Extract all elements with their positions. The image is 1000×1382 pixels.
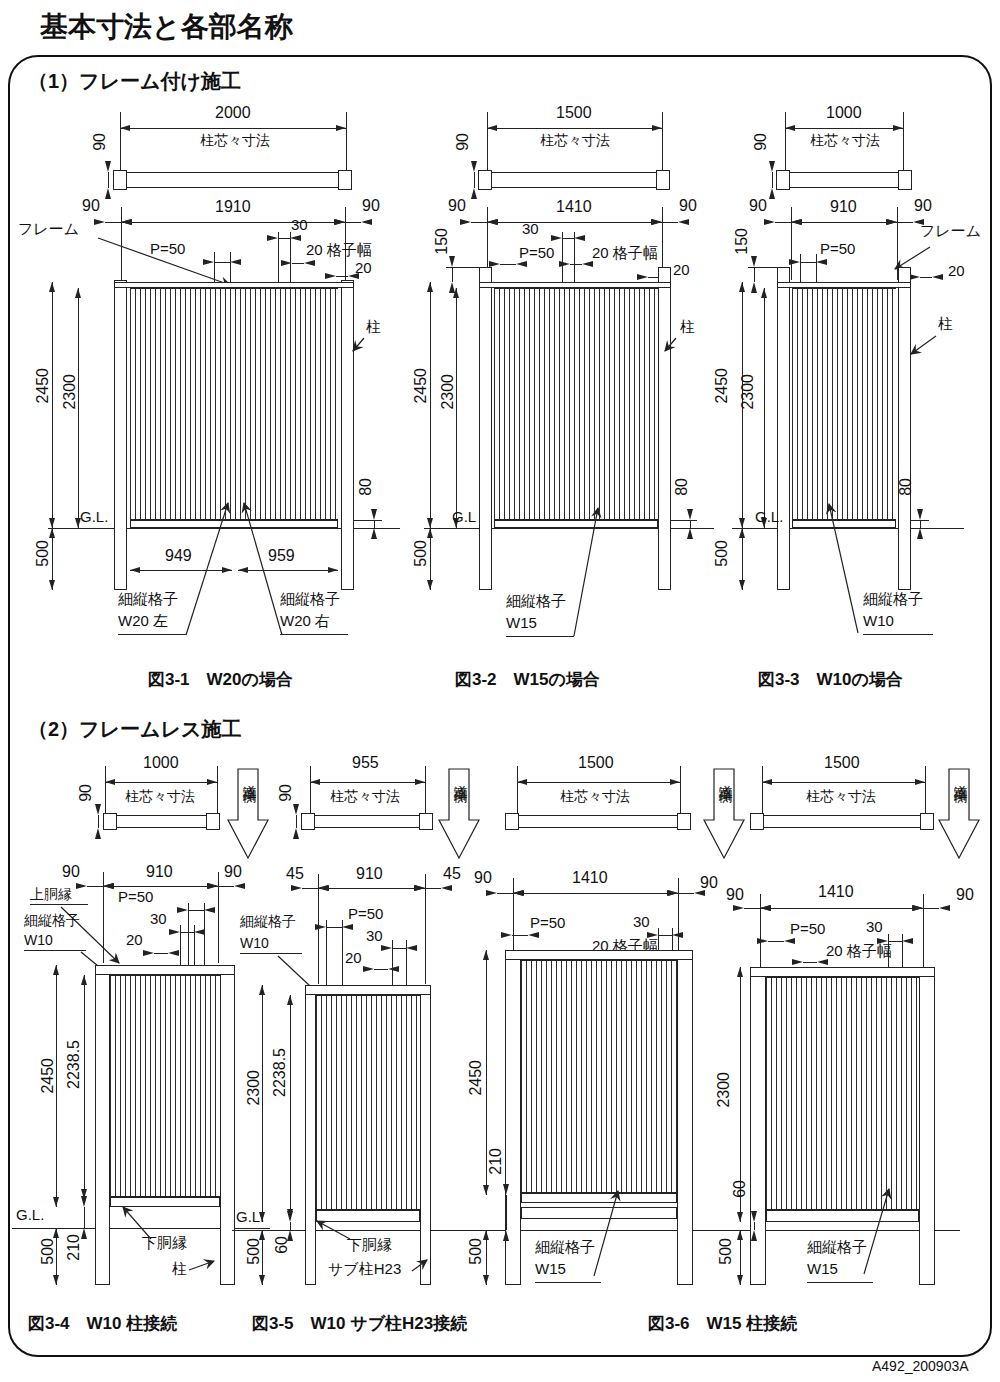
- dim-line: [923, 908, 939, 909]
- leader-line: [238, 497, 288, 643]
- label-post-center: 柱芯々寸法: [330, 788, 400, 805]
- plan-rail: [752, 815, 933, 828]
- dim-span: 2000: [215, 103, 251, 122]
- ext-line: [214, 252, 215, 284]
- label-lattice: 細縦格子: [24, 912, 80, 929]
- dim-p50: P=50: [790, 920, 825, 938]
- label-post-center: 柱芯々寸法: [540, 132, 610, 149]
- label-lattice: 細縦格子: [280, 590, 340, 608]
- ext-line: [446, 267, 480, 268]
- plan-post: [113, 170, 127, 190]
- dim-line: [562, 238, 574, 239]
- leader-line: [408, 1254, 434, 1276]
- dim-20: 20: [673, 261, 690, 279]
- dim-clear: 910: [356, 864, 383, 883]
- lattice-panel: [110, 975, 220, 1197]
- ext-line: [923, 894, 924, 967]
- dim-30: 30: [633, 913, 650, 931]
- label-gl: G.L.: [755, 508, 783, 526]
- dim-line: [278, 238, 290, 239]
- dim-line: [188, 910, 204, 911]
- dim-500: 500: [466, 1238, 485, 1265]
- caption-fig3-3: 図3-3 W10の場合: [758, 668, 903, 691]
- dim-line: [105, 222, 121, 223]
- leader-line: [662, 336, 682, 356]
- dim-line: [296, 815, 297, 828]
- dim-line: [374, 520, 375, 528]
- upper-rail: [750, 967, 935, 977]
- post-right: [898, 267, 911, 590]
- dim-500: 500: [38, 1238, 57, 1265]
- dim-line: [84, 975, 85, 1199]
- dim-span: 1000: [826, 103, 862, 122]
- dim-line: [920, 520, 921, 528]
- dim-line: [517, 782, 680, 783]
- drawing-page: 基本寸法と各部名称 （1）フレーム付け施工 （2）フレームレス施工 A492_2…: [0, 0, 1000, 1382]
- post-right: [919, 967, 935, 1285]
- plan-rail: [507, 815, 690, 828]
- dim-line: [690, 520, 691, 528]
- dim-clear: 1410: [572, 868, 608, 887]
- dim-p50: P=50: [118, 888, 153, 906]
- dim-line: [768, 941, 784, 942]
- dim-line: [290, 995, 291, 1219]
- label-post-center: 柱芯々寸法: [806, 788, 876, 805]
- road-side-arrow: [938, 768, 980, 860]
- plan-post: [920, 813, 934, 830]
- dim-2450: 2450: [411, 368, 430, 404]
- label-lattice-type: W20 左: [118, 612, 168, 630]
- dim-p50: P=50: [150, 240, 185, 258]
- label-lattice-type: W10: [240, 935, 269, 952]
- ext-line: [902, 934, 903, 967]
- label-upper-rail: 上胴縁: [30, 886, 72, 903]
- road-side-arrow: [438, 768, 480, 860]
- dim-20: 20: [126, 931, 143, 949]
- ext-line: [180, 925, 181, 965]
- leader-line: [586, 1184, 628, 1280]
- plan-post: [419, 813, 433, 830]
- dim-line: [662, 222, 678, 223]
- road-side-arrow: [227, 768, 269, 860]
- label-lattice: 細縦格子: [118, 590, 178, 608]
- plan-rail: [480, 172, 668, 188]
- post-left: [114, 280, 127, 590]
- dim-210: 210: [486, 1148, 505, 1175]
- dim-line: [87, 886, 103, 887]
- post-right: [220, 965, 235, 1285]
- dim-line: [84, 1207, 85, 1228]
- dim-line: [121, 222, 345, 223]
- dim-line: [803, 962, 817, 963]
- dim-150: 150: [432, 228, 451, 255]
- dim-line: [800, 262, 816, 263]
- dim-90: 90: [474, 868, 492, 887]
- dim-line: [105, 782, 217, 783]
- post-right: [658, 267, 671, 590]
- plan-post: [898, 170, 912, 190]
- dim-2300: 2300: [60, 374, 79, 410]
- dim-line: [318, 888, 425, 889]
- ext-line: [748, 267, 778, 268]
- dim-2450: 2450: [466, 1060, 485, 1096]
- plan-post: [478, 170, 492, 190]
- dim-clear: 910: [830, 197, 857, 216]
- ext-line: [671, 520, 697, 521]
- ext-line: [425, 874, 426, 984]
- dim-2450: 2450: [38, 1058, 57, 1094]
- dim-45: 45: [443, 864, 461, 883]
- dim-line: [500, 264, 516, 265]
- caption-fig3-5: 図3-5 W10 サブ柱H23接続: [252, 1312, 467, 1335]
- dim-line: [775, 222, 791, 223]
- label-lattice-type: W15: [506, 614, 537, 632]
- upper-rail: [505, 950, 693, 960]
- plan-post: [301, 813, 315, 830]
- leader-line: [906, 333, 942, 359]
- dim-line: [762, 782, 925, 783]
- plan-post: [103, 813, 117, 830]
- dim-line: [506, 1195, 507, 1230]
- dim-line: [108, 172, 109, 188]
- dim-line: [785, 128, 903, 129]
- leader-line: [350, 336, 370, 356]
- dim-clear: 1910: [215, 197, 251, 216]
- upper-rail: [95, 965, 235, 975]
- ext-line: [903, 112, 904, 170]
- dim-line: [180, 932, 194, 933]
- road-side-arrow: [703, 768, 745, 860]
- ext-line: [574, 232, 575, 284]
- dim-line: [791, 222, 897, 223]
- dim-60: 60: [272, 1236, 291, 1254]
- leader-line: [170, 495, 240, 645]
- dim-45: 45: [286, 864, 304, 883]
- ext-line: [678, 878, 679, 950]
- dim-line: [487, 222, 662, 223]
- dim-line: [497, 893, 513, 894]
- label-post: 柱: [680, 318, 695, 336]
- ext-line: [925, 766, 926, 814]
- label-road-side: 道路側: [717, 774, 735, 780]
- dim-clear: 910: [146, 862, 173, 881]
- dim-line: [678, 893, 694, 894]
- dim-line: [425, 888, 441, 889]
- ext-line: [487, 112, 488, 170]
- ext-line: [662, 112, 663, 170]
- plan-rail: [778, 172, 910, 188]
- dim-line: [754, 1222, 755, 1230]
- dim-2450: 2450: [712, 368, 731, 404]
- leader-line: [856, 1182, 898, 1278]
- dim-90: 90: [362, 196, 380, 215]
- dim-line: [487, 128, 662, 129]
- label-post-center: 柱芯々寸法: [810, 132, 880, 149]
- dim-90: 90: [276, 784, 295, 802]
- dim-line: [326, 927, 342, 928]
- dim-line: [302, 888, 318, 889]
- label-lattice-type: W10: [24, 932, 53, 949]
- label-sub-post: サブ柱H23: [328, 1260, 401, 1278]
- dim-30: 30: [150, 910, 167, 928]
- ext-line: [278, 232, 279, 284]
- ext-line: [120, 112, 121, 170]
- dim-line: [742, 528, 743, 590]
- label-road-side: 道路側: [452, 774, 470, 780]
- ext-line: [194, 925, 195, 965]
- leader-line: [565, 500, 607, 640]
- dim-2238: 2238.5: [64, 1040, 83, 1089]
- upper-rail: [305, 985, 431, 995]
- ext-line: [218, 872, 219, 963]
- dim-90: 90: [726, 885, 744, 904]
- dim-line: [310, 782, 425, 783]
- dim-line: [658, 935, 672, 936]
- ext-line: [342, 920, 343, 992]
- plan-rail: [115, 172, 350, 188]
- label-lattice: 細縦格子: [863, 590, 923, 608]
- label-underline: [807, 1282, 873, 1283]
- post-right: [677, 950, 693, 1285]
- ext-line: [672, 928, 673, 950]
- ext-line: [791, 207, 792, 280]
- dim-30: 30: [522, 220, 539, 238]
- dim-90: 90: [914, 196, 932, 215]
- ext-line: [911, 520, 929, 521]
- dim-2300: 2300: [438, 374, 457, 410]
- plan-post: [505, 813, 519, 830]
- dim-2300: 2300: [738, 374, 757, 410]
- doc-code: A492_200903A: [872, 1358, 969, 1374]
- dim-150: 150: [732, 228, 751, 255]
- dim-90: 90: [90, 133, 109, 151]
- dim-80: 80: [896, 478, 915, 496]
- plan-post: [338, 170, 352, 190]
- lattice-panel: [130, 288, 338, 520]
- dim-line: [764, 288, 765, 528]
- label-gl: G.L: [452, 508, 476, 526]
- dim-30: 30: [866, 918, 883, 936]
- dim-clear: 1410: [818, 882, 854, 901]
- dim-500: 500: [244, 1238, 263, 1265]
- ext-line: [785, 112, 786, 170]
- dim-p50: P=50: [530, 914, 565, 932]
- ext-line: [290, 232, 291, 284]
- dim-20: 20: [948, 262, 965, 280]
- ext-line: [562, 232, 563, 284]
- ext-line: [354, 520, 382, 521]
- ext-line: [513, 878, 514, 950]
- dim-clear: 1410: [556, 197, 592, 216]
- label-post-center: 柱芯々寸法: [200, 132, 270, 149]
- dim-line: [374, 969, 388, 970]
- dim-line: [214, 262, 230, 263]
- post-left: [777, 267, 790, 590]
- ext-line: [310, 766, 311, 814]
- ext-line: [658, 928, 659, 950]
- dim-line: [744, 908, 760, 909]
- caption-fig3-1: 図3-1 W20の場合: [148, 668, 293, 691]
- lattice-panel: [792, 288, 896, 520]
- plan-post: [656, 170, 670, 190]
- dim-line: [513, 893, 678, 894]
- label-post-center: 柱芯々寸法: [560, 788, 630, 805]
- leader-line: [822, 497, 862, 637]
- caption-fig3-2: 図3-2 W15の場合: [455, 668, 600, 691]
- plan-rail: [105, 815, 218, 828]
- dim-line: [392, 948, 406, 949]
- dim-80: 80: [672, 478, 691, 496]
- label-post: 柱: [938, 315, 953, 333]
- ext-line: [760, 894, 761, 967]
- dim-span: 1000: [143, 753, 179, 772]
- dim-500: 500: [33, 540, 52, 567]
- dim-30: 30: [366, 927, 383, 945]
- section-2-heading: （2）フレームレス施工: [28, 716, 241, 743]
- dim-90: 90: [76, 784, 95, 802]
- leader-line: [186, 1256, 220, 1274]
- dim-line: [486, 1230, 487, 1285]
- ext-line: [816, 254, 817, 284]
- ext-line: [346, 112, 347, 170]
- ext-line: [230, 252, 231, 284]
- dim-90: 90: [956, 885, 974, 904]
- dim-line: [772, 172, 773, 188]
- dim-90: 90: [224, 862, 242, 881]
- dim-2300: 2300: [714, 1072, 733, 1108]
- dim-line: [474, 172, 475, 188]
- dim-p50: P=50: [519, 244, 554, 262]
- label-frame: フレーム: [18, 220, 79, 238]
- section-1-heading: （1）フレーム付け施工: [28, 68, 241, 95]
- dim-span: 955: [352, 753, 379, 772]
- post-left: [95, 965, 110, 1285]
- label-post: 柱: [366, 318, 381, 336]
- dim-90: 90: [749, 196, 767, 215]
- leader-line: [310, 1215, 358, 1245]
- lattice-panel: [766, 977, 919, 1210]
- leader-line: [118, 1202, 156, 1244]
- dim-90: 90: [62, 862, 80, 881]
- lattice-panel: [316, 995, 420, 1210]
- label-gl: G.L.: [236, 1208, 264, 1226]
- dim-60: 60: [730, 1180, 749, 1198]
- leader-line: [890, 243, 935, 275]
- ext-line: [800, 254, 801, 284]
- dim-500: 500: [411, 540, 430, 567]
- lattice-panel: [521, 960, 677, 1193]
- label-lattice-type: W10: [863, 612, 894, 630]
- ext-line: [517, 766, 518, 814]
- dim-line: [430, 282, 431, 528]
- label-lattice-type: W15: [535, 1260, 566, 1278]
- dim-line: [290, 1222, 291, 1230]
- ext-line: [680, 766, 681, 814]
- plan-post: [776, 170, 790, 190]
- dim-p50: P=50: [348, 905, 383, 923]
- label-underline: [863, 634, 933, 635]
- dim-line: [336, 276, 348, 277]
- label-lattice: 細縦格子: [240, 913, 296, 930]
- dim-20-lattice: 20 格子幅: [826, 942, 892, 960]
- dim-line: [897, 222, 913, 223]
- dim-p50: P=50: [820, 240, 855, 258]
- dim-line: [512, 935, 528, 936]
- plan-rail: [303, 815, 432, 828]
- post-left: [479, 267, 492, 590]
- dim-20: 20: [345, 949, 362, 967]
- label-underline: [506, 636, 574, 637]
- caption-fig3-6: 図3-6 W15 柱接続: [648, 1312, 797, 1335]
- label-road-side: 道路側: [241, 774, 259, 780]
- dim-line: [570, 264, 582, 265]
- dim-line: [52, 282, 53, 528]
- dim-90: 90: [751, 133, 770, 151]
- dim-2450: 2450: [33, 368, 52, 404]
- label-gl: G.L.: [80, 508, 108, 526]
- dim-20-lattice: 20 格子幅: [592, 244, 658, 262]
- post-right: [341, 280, 354, 590]
- dim-line: [292, 263, 304, 264]
- dim-line: [218, 886, 234, 887]
- dim-line: [760, 908, 923, 909]
- dim-line: [452, 267, 453, 282]
- dim-line: [920, 277, 932, 278]
- ext-line: [188, 903, 189, 965]
- dim-30: 30: [291, 216, 308, 234]
- label-lattice-type: W15: [807, 1260, 838, 1278]
- ground-line: [460, 1230, 705, 1231]
- dim-line: [740, 1230, 741, 1285]
- dim-span: 1500: [556, 103, 592, 122]
- dim-90: 90: [453, 133, 472, 151]
- dim-line: [120, 128, 346, 129]
- plan-post: [206, 813, 220, 830]
- dim-90: 90: [82, 196, 100, 215]
- page-title: 基本寸法と各部名称: [40, 8, 293, 46]
- caption-fig3-4: 図3-4 W10 柱接続: [28, 1312, 177, 1335]
- dim-line: [471, 222, 487, 223]
- dim-90: 90: [448, 196, 466, 215]
- dim-80: 80: [356, 478, 375, 496]
- dim-span: 1500: [824, 753, 860, 772]
- dim-2238: 2238.5: [270, 1048, 289, 1097]
- ext-line: [217, 766, 218, 814]
- ext-line: [762, 766, 763, 814]
- plan-post: [750, 813, 764, 830]
- dim-500: 500: [716, 1238, 735, 1265]
- label-underline: [535, 1282, 601, 1283]
- ext-line: [105, 766, 106, 814]
- dim-line: [754, 267, 755, 282]
- label-underline: [280, 634, 348, 635]
- dim-20-lattice: 20 格子幅: [306, 241, 372, 259]
- label-frame: フレーム: [920, 222, 981, 240]
- dim-line: [98, 815, 99, 828]
- ext-line: [425, 766, 426, 814]
- label-post: 柱: [172, 1260, 187, 1278]
- sub-post-right: [420, 985, 431, 1285]
- plan-post: [677, 813, 691, 830]
- dim-line: [345, 222, 361, 223]
- dim-210: 210: [64, 1234, 83, 1261]
- dim-line: [154, 953, 168, 954]
- dim-2300: 2300: [244, 1070, 263, 1106]
- dim-90: 90: [679, 196, 697, 215]
- dim-span: 1500: [578, 753, 614, 772]
- dim-line: [103, 886, 218, 887]
- lattice-panel: [494, 288, 658, 520]
